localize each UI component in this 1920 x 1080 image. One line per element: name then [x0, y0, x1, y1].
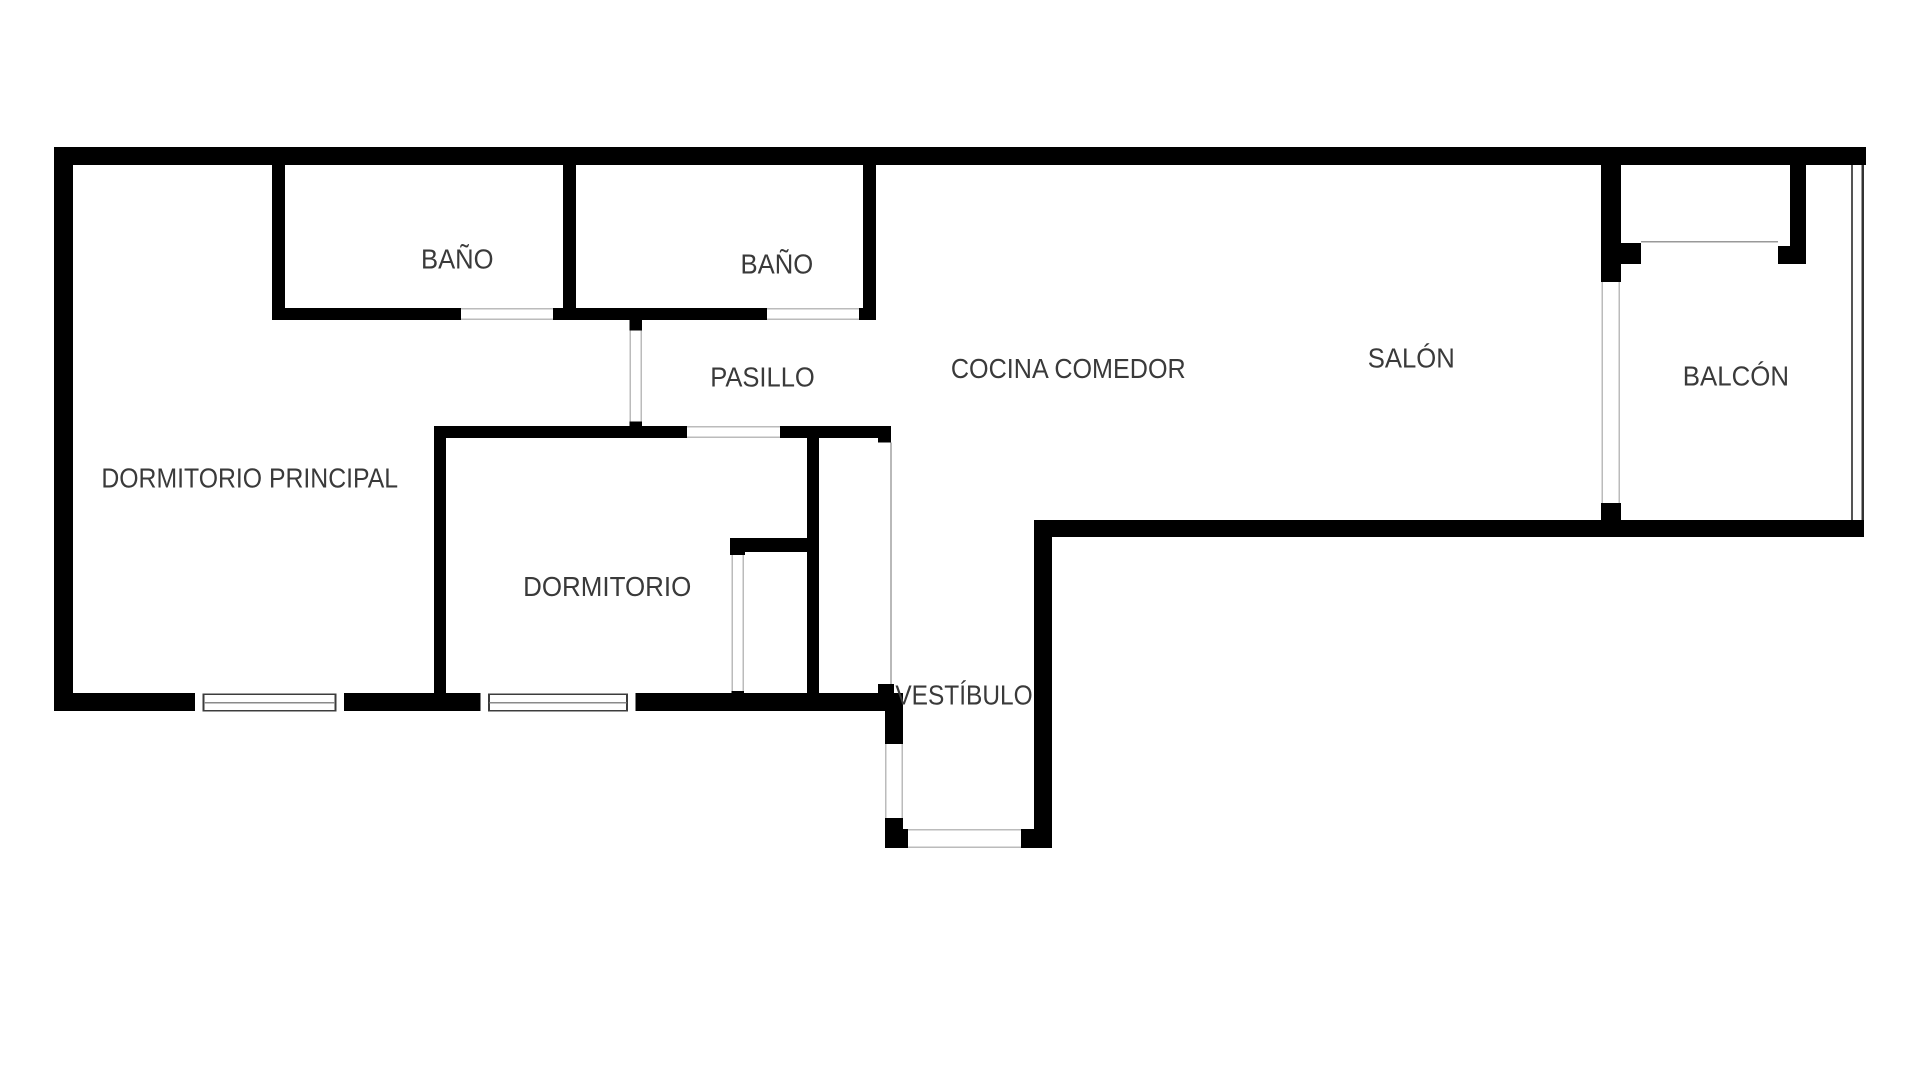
svg-text:BAÑO: BAÑO: [741, 248, 814, 279]
svg-text:COCINA COMEDOR: COCINA COMEDOR: [951, 353, 1186, 384]
svg-text:BAÑO: BAÑO: [421, 243, 494, 274]
svg-text:DORMITORIO PRINCIPAL: DORMITORIO PRINCIPAL: [101, 463, 398, 494]
svg-text:DORMITORIO: DORMITORIO: [523, 571, 691, 602]
svg-text:PASILLO: PASILLO: [710, 362, 815, 393]
svg-text:VESTÍBULO: VESTÍBULO: [895, 680, 1032, 711]
svg-text:BALCÓN: BALCÓN: [1683, 361, 1789, 392]
svg-text:SALÓN: SALÓN: [1368, 343, 1455, 374]
